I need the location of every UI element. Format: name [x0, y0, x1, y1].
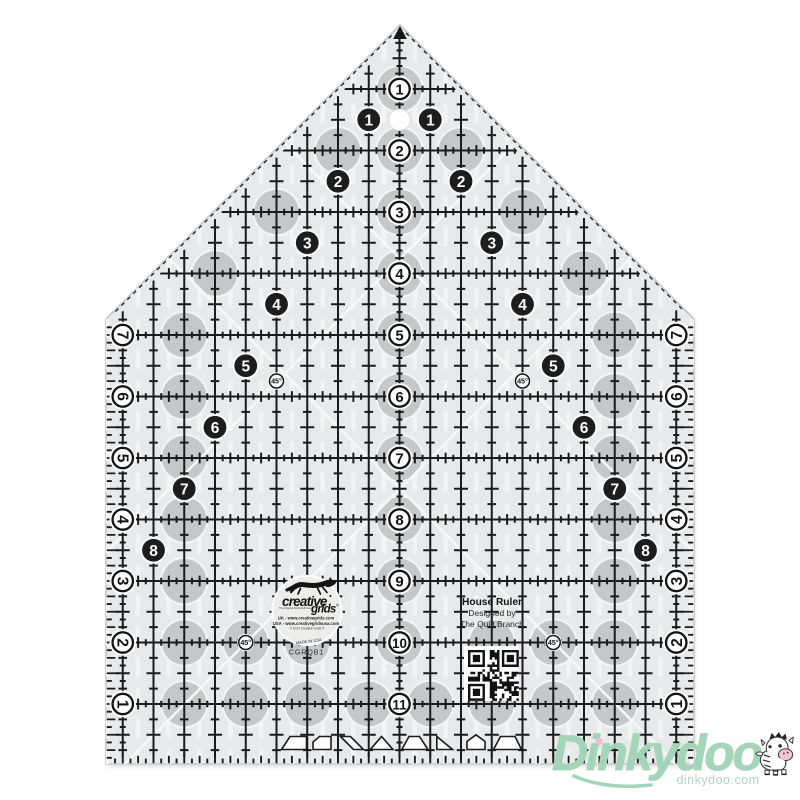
svg-text:CGRQB1: CGRQB1 [289, 648, 324, 657]
svg-text:USA - www.creativegridsusa.com: USA - www.creativegridsusa.com [273, 621, 340, 626]
svg-text:9: 9 [395, 574, 403, 591]
svg-text:The Quilt Branch: The Quilt Branch [460, 619, 524, 629]
svg-text:8: 8 [395, 512, 403, 529]
svg-text:UK - www.creativegrids.com: UK - www.creativegrids.com [278, 615, 335, 620]
svg-text:grids: grids [310, 604, 336, 616]
svg-text:6: 6 [395, 389, 403, 406]
svg-text:1: 1 [669, 699, 686, 708]
svg-text:6: 6 [580, 420, 589, 437]
svg-text:5: 5 [241, 358, 250, 375]
svg-text:House Ruler: House Ruler [462, 597, 522, 608]
svg-text:dinkydoo.com: dinkydoo.com [676, 773, 759, 787]
svg-text:3: 3 [113, 577, 130, 586]
svg-text:6: 6 [113, 392, 130, 401]
svg-text:2: 2 [334, 174, 343, 191]
svg-text:3: 3 [669, 576, 686, 585]
svg-text:7: 7 [610, 481, 619, 498]
svg-text:3: 3 [487, 235, 496, 252]
svg-text:6: 6 [211, 420, 220, 437]
svg-text:1: 1 [364, 112, 373, 129]
svg-text:4: 4 [395, 266, 404, 283]
svg-text:®: ® [336, 603, 339, 608]
svg-text:45°: 45° [548, 638, 559, 647]
svg-text:2: 2 [669, 638, 686, 647]
svg-text:4: 4 [272, 297, 281, 314]
svg-text:7: 7 [669, 331, 686, 340]
svg-text:11: 11 [392, 698, 407, 713]
svg-text:Designed by: Designed by [468, 608, 516, 618]
svg-text:6: 6 [669, 392, 686, 401]
svg-text:The Original NON-SLIP ruler: The Original NON-SLIP ruler [279, 606, 312, 610]
svg-text:2: 2 [113, 638, 130, 647]
svg-text:45°: 45° [517, 377, 528, 386]
svg-text:2: 2 [457, 174, 466, 191]
svg-text:2: 2 [395, 143, 403, 160]
svg-text:5: 5 [395, 328, 403, 345]
svg-text:5: 5 [113, 454, 130, 463]
svg-text:1: 1 [426, 112, 435, 129]
svg-text:8: 8 [641, 543, 650, 560]
svg-text:8: 8 [149, 543, 158, 560]
svg-text:5: 5 [549, 358, 558, 375]
svg-text:7: 7 [180, 481, 189, 498]
svg-text:45°: 45° [271, 377, 282, 386]
svg-text:7: 7 [395, 451, 403, 468]
svg-text:4: 4 [669, 515, 686, 524]
svg-text:1: 1 [113, 700, 130, 709]
svg-text:45°: 45° [240, 638, 251, 647]
svg-text:4: 4 [518, 297, 527, 314]
svg-text:1: 1 [395, 82, 403, 99]
svg-text:3: 3 [395, 205, 403, 222]
svg-text:5: 5 [669, 453, 686, 462]
svg-text:4: 4 [113, 515, 130, 524]
svg-text:© 2014 Creative Grids ®: © 2014 Creative Grids ® [290, 626, 325, 630]
svg-text:7: 7 [113, 331, 130, 340]
svg-text:3: 3 [303, 235, 312, 252]
svg-text:10: 10 [392, 636, 407, 651]
